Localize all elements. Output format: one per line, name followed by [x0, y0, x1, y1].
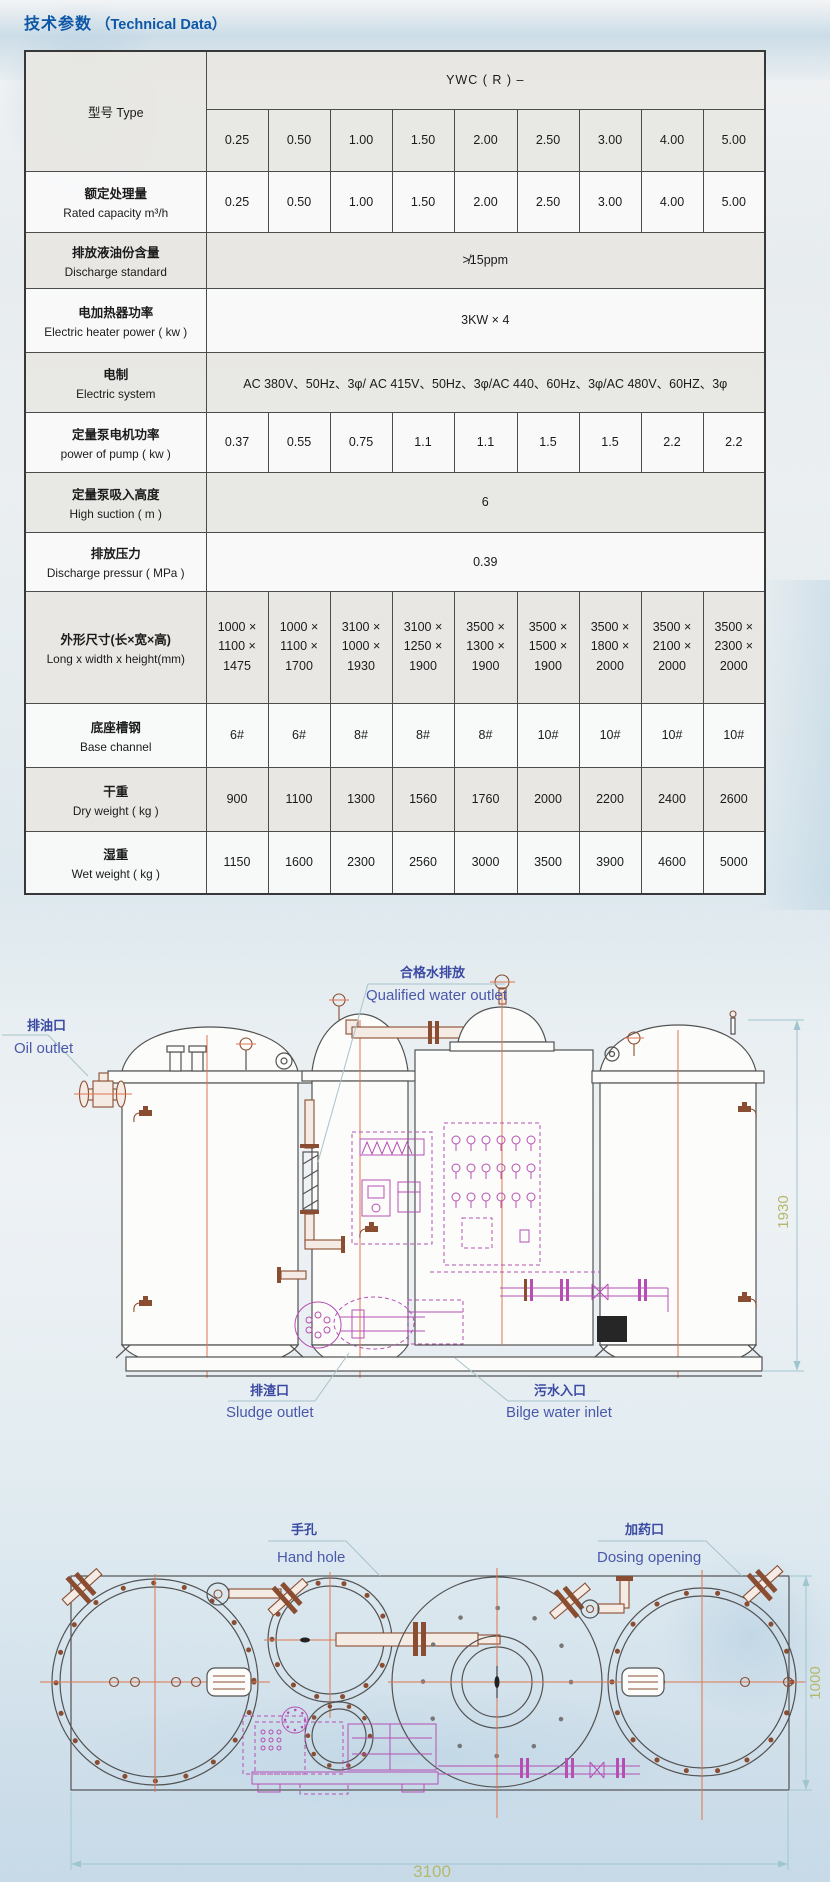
center-tank-cover — [388, 1568, 608, 1818]
row-label-en: Dry weight ( kg ) — [28, 804, 204, 818]
value-cell: 1560 — [392, 767, 454, 831]
page-title-en: （Technical Data） — [96, 17, 226, 33]
value-cell: 3000 — [454, 831, 517, 894]
row-label-en: Discharge pressur ( MPa ) — [28, 566, 204, 580]
value-cell: 6# — [206, 703, 268, 767]
value-cell: 1.50 — [392, 171, 454, 232]
value-cell: 1150 — [206, 831, 268, 894]
value-cell: 1.1 — [392, 412, 454, 472]
row-span-value-cell: ≯15ppm — [206, 232, 765, 288]
row-span-value-cell: 0.39 — [206, 532, 765, 591]
table-row: 定量泵吸入高度High suction ( m )6 — [25, 472, 765, 532]
value-cell: 1760 — [454, 767, 517, 831]
row-label-cell: 定量泵吸入高度High suction ( m ) — [25, 472, 206, 532]
table-row: 排放压力Discharge pressur ( MPa )0.39 — [25, 532, 765, 591]
table-header-row: 型号 TypeYWC ( R ) – — [25, 51, 765, 109]
value-cell: 3.00 — [579, 171, 641, 232]
dosing-label-cn: 加药口 — [624, 1522, 664, 1537]
row-label-en: High suction ( m ) — [28, 507, 204, 521]
value-cell: 2200 — [579, 767, 641, 831]
row-label-cell: 干重Dry weight ( kg ) — [25, 767, 206, 831]
hand-hole-label-en: Hand hole — [277, 1549, 345, 1566]
size-cell: 3.00 — [579, 109, 641, 171]
row-label-cell: 额定处理量Rated capacity m³/h — [25, 171, 206, 232]
table-row: 电加热器功率Electric heater power ( kw )3KW × … — [25, 288, 765, 352]
row-span-value-cell: 3KW × 4 — [206, 288, 765, 352]
value-cell: 2.00 — [454, 171, 517, 232]
oil-outlet-label-cn: 排油口 — [27, 1018, 66, 1033]
row-label-cn: 底座槽钢 — [28, 717, 204, 736]
row-label-cell: 外形尺寸(长×宽×高)Long x width x height(mm) — [25, 591, 206, 703]
length-dimension: 3100 — [71, 1792, 788, 1881]
value-cell: 1000 × 1100 × 1475 — [206, 591, 268, 703]
row-label-cn: 定量泵吸入高度 — [28, 484, 204, 503]
value-cell: 0.55 — [268, 412, 330, 472]
value-cell: 5.00 — [703, 171, 765, 232]
oil-outlet-label-en: Oil outlet — [14, 1040, 74, 1057]
value-cell: 2.2 — [641, 412, 703, 472]
size-cell: 0.25 — [206, 109, 268, 171]
value-cell: 0.25 — [206, 171, 268, 232]
left-tank-cover — [40, 1574, 270, 1792]
value-cell: 900 — [206, 767, 268, 831]
value-cell: 2560 — [392, 831, 454, 894]
small-flange-cover — [305, 1702, 373, 1770]
value-cell: 3500 × 2100 × 2000 — [641, 591, 703, 703]
value-cell: 8# — [454, 703, 517, 767]
value-cell: 3900 — [579, 831, 641, 894]
row-label-cell: 排放压力Discharge pressur ( MPa ) — [25, 532, 206, 591]
row-label-en: Long x width x height(mm) — [28, 652, 204, 666]
value-cell: 3500 — [517, 831, 579, 894]
dosing-label-en: Dosing opening — [597, 1549, 701, 1566]
row-label-cn: 电加热器功率 — [28, 302, 204, 321]
left-tank — [108, 1027, 312, 1378]
value-cell: 2.2 — [703, 412, 765, 472]
bilge-inlet-label-cn: 污水入口 — [534, 1383, 586, 1398]
pump-assembly-plan — [243, 1707, 640, 1794]
value-cell: 10# — [579, 703, 641, 767]
row-span-value-cell: AC 380V、50Hz、3φ/ AC 415V、50Hz、3φ/AC 440、… — [206, 352, 765, 412]
value-cell: 2600 — [703, 767, 765, 831]
series-header-cell: YWC ( R ) – — [206, 51, 765, 109]
value-cell: 0.75 — [330, 412, 392, 472]
sludge-outlet-label-cn: 排渣口 — [250, 1383, 289, 1398]
value-cell: 1.5 — [517, 412, 579, 472]
row-label-cell: 电制Electric system — [25, 352, 206, 412]
row-label-cn: 湿重 — [28, 844, 204, 863]
value-cell: 2300 — [330, 831, 392, 894]
table-row: 湿重Wet weight ( kg )115016002300256030003… — [25, 831, 765, 894]
value-cell: 1600 — [268, 831, 330, 894]
value-cell: 1.1 — [454, 412, 517, 472]
technical-data-table: 型号 TypeYWC ( R ) –0.250.501.001.502.002.… — [24, 50, 766, 895]
value-cell: 0.37 — [206, 412, 268, 472]
row-label-en: power of pump ( kw ) — [28, 447, 204, 461]
middle-column-tank — [302, 1014, 418, 1378]
size-cell: 1.00 — [330, 109, 392, 171]
plan-view-drawing: 1000 3100 手孔 Hand hole 加药口 Dosing openin… — [0, 1470, 830, 1882]
table-row: 定量泵电机功率power of pump ( kw )0.370.550.751… — [25, 412, 765, 472]
row-span-value-cell: 6 — [206, 472, 765, 532]
row-label-cn: 外形尺寸(长×宽×高) — [28, 629, 204, 648]
value-cell: 1.00 — [330, 171, 392, 232]
row-label-cell: 底座槽钢Base channel — [25, 703, 206, 767]
value-cell: 3500 × 1500 × 1900 — [517, 591, 579, 703]
table-row: 额定处理量Rated capacity m³/h0.250.501.001.50… — [25, 171, 765, 232]
hand-hole-label-cn: 手孔 — [291, 1522, 317, 1537]
value-cell: 3500 × 1300 × 1900 — [454, 591, 517, 703]
type-label-cell: 型号 Type — [25, 51, 206, 171]
row-label-en: Electric system — [28, 387, 204, 401]
row-label-en: Electric heater power ( kw ) — [28, 325, 204, 339]
size-cell: 4.00 — [641, 109, 703, 171]
value-cell: 3500 × 1800 × 2000 — [579, 591, 641, 703]
background-smudge — [758, 580, 830, 910]
row-label-cell: 电加热器功率Electric heater power ( kw ) — [25, 288, 206, 352]
base-frame — [126, 1357, 762, 1376]
pipe-fittings — [54, 1556, 792, 1629]
side-view-drawing: 1930 排油口 Oil outlet 合格水排放 Qualified wate… — [0, 940, 830, 1440]
value-cell: 6# — [268, 703, 330, 767]
row-label-en: Rated capacity m³/h — [28, 206, 204, 220]
value-cell: 0.50 — [268, 171, 330, 232]
row-label-cn: 干重 — [28, 781, 204, 800]
page-title: 技术参数（Technical Data） — [24, 10, 226, 34]
value-cell: 1000 × 1100 × 1700 — [268, 591, 330, 703]
length-dim-text: 3100 — [413, 1862, 451, 1881]
value-cell: 2.50 — [517, 171, 579, 232]
row-label-cn: 排放压力 — [28, 543, 204, 562]
height-dim-text: 1930 — [775, 1195, 792, 1228]
value-cell: 1100 — [268, 767, 330, 831]
value-cell: 4600 — [641, 831, 703, 894]
row-label-cell: 湿重Wet weight ( kg ) — [25, 831, 206, 894]
qualified-water-label-en: Qualified water outlet — [366, 987, 508, 1004]
size-cell: 1.50 — [392, 109, 454, 171]
size-cell: 2.00 — [454, 109, 517, 171]
width-dim-text: 1000 — [807, 1666, 824, 1699]
size-cell: 2.50 — [517, 109, 579, 171]
size-cell: 5.00 — [703, 109, 765, 171]
size-cell: 0.50 — [268, 109, 330, 171]
value-cell: 1300 — [330, 767, 392, 831]
table-row: 底座槽钢Base channel6#6#8#8#8#10#10#10#10# — [25, 703, 765, 767]
value-cell: 2000 — [517, 767, 579, 831]
row-label-cn: 定量泵电机功率 — [28, 424, 204, 443]
row-label-en: Wet weight ( kg ) — [28, 867, 204, 881]
sludge-outlet-label-en: Sludge outlet — [226, 1404, 314, 1421]
value-cell: 10# — [703, 703, 765, 767]
table-row: 排放液油份含量Discharge standard≯15ppm — [25, 232, 765, 288]
value-cell: 2400 — [641, 767, 703, 831]
value-cell: 8# — [392, 703, 454, 767]
value-cell: 3100 × 1000 × 1930 — [330, 591, 392, 703]
value-cell: 10# — [641, 703, 703, 767]
value-cell: 5000 — [703, 831, 765, 894]
row-label-cell: 定量泵电机功率power of pump ( kw ) — [25, 412, 206, 472]
qualified-water-label-cn: 合格水排放 — [400, 965, 466, 980]
value-cell: 10# — [517, 703, 579, 767]
table-row: 电制Electric systemAC 380V、50Hz、3φ/ AC 415… — [25, 352, 765, 412]
page-title-cn: 技术参数 — [24, 16, 92, 33]
plan-frame — [71, 1576, 789, 1790]
table-row: 干重Dry weight ( kg )900110013001560176020… — [25, 767, 765, 831]
table-row: 外形尺寸(长×宽×高)Long x width x height(mm)1000… — [25, 591, 765, 703]
bilge-inlet-label-en: Bilge water inlet — [506, 1404, 613, 1421]
row-label-cn: 电制 — [28, 364, 204, 383]
row-label-cn: 排放液油份含量 — [28, 242, 204, 261]
value-cell: 3100 × 1250 × 1900 — [392, 591, 454, 703]
value-cell: 3500 × 2300 × 2000 — [703, 591, 765, 703]
value-cell: 8# — [330, 703, 392, 767]
row-label-cn: 额定处理量 — [28, 183, 204, 202]
row-label-en: Base channel — [28, 740, 204, 754]
row-label-cell: 排放液油份含量Discharge standard — [25, 232, 206, 288]
value-cell: 1.5 — [579, 412, 641, 472]
value-cell: 4.00 — [641, 171, 703, 232]
row-label-en: Discharge standard — [28, 265, 204, 279]
